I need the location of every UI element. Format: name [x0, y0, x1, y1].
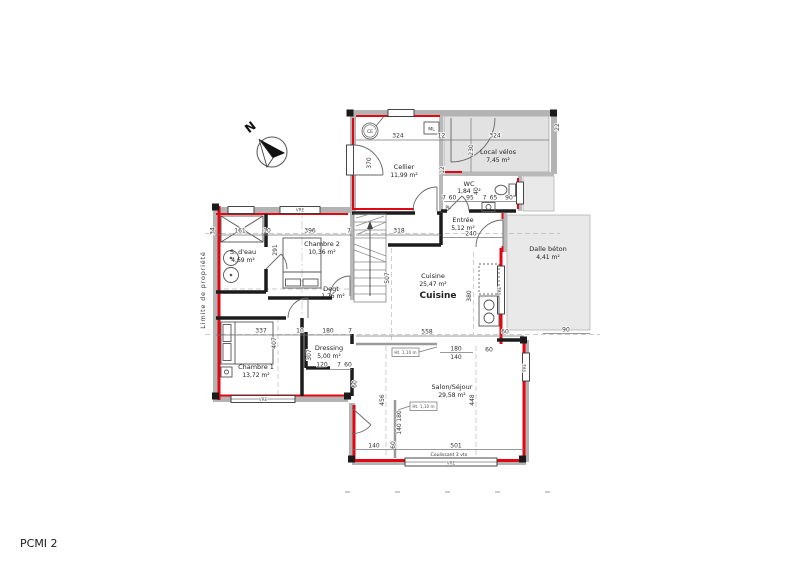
- dim-wc-7b: 7: [483, 195, 487, 202]
- dim-bottom-60: 60: [390, 441, 397, 449]
- dim-wing-10: 10: [263, 228, 271, 235]
- dim-wc-40: 40: [473, 187, 480, 195]
- height-note-top: Ht. 1,10 m: [394, 350, 416, 355]
- dim-hall-60: 60: [352, 380, 359, 388]
- height-notes: Ht. 1,10 m Ht. 1,10 m: [392, 347, 437, 411]
- wall-notch: [523, 176, 554, 211]
- cellier-top-window: [388, 110, 414, 117]
- sdeau-top-window: [228, 207, 254, 214]
- wc-east-window: [517, 182, 524, 204]
- dim-salon-60b: 60: [485, 347, 493, 354]
- dim-dressing-307: 307: [306, 349, 313, 361]
- degt-name: Degt: [323, 285, 339, 293]
- dim-velos-wall: 12: [439, 166, 446, 174]
- chambre2-area: 10,36 m²: [308, 249, 336, 256]
- dalle-beton-area: 4,41 m²: [536, 254, 560, 261]
- dim-velos-depth: 230: [468, 144, 475, 156]
- dim-dalle-90: 90: [562, 327, 570, 334]
- salon-name: Salon/Séjour: [432, 383, 473, 391]
- dim-chambre1-407: 407: [271, 337, 278, 349]
- floor-plan-drawing: N CE Ht. 1,10 m Ht. 1,10 m Cellier 11,99…: [0, 0, 800, 566]
- local-velos-name: Local vélos: [480, 148, 517, 156]
- dim-c1-10: 10: [296, 328, 304, 335]
- property-limit-label: Limite de propriété: [199, 251, 207, 328]
- ce-marker: CE: [362, 115, 385, 139]
- cuisine-bold-label: Cuisine: [419, 291, 456, 301]
- ml-label: ML: [428, 127, 435, 133]
- dim-lowwall-140: 140: [396, 423, 403, 435]
- dim-chambre2-291: 291: [272, 244, 279, 256]
- kitchen-appliance: [479, 264, 499, 294]
- dim-bottom-501: 501: [450, 443, 462, 450]
- dim-dressing-7: 7: [337, 362, 341, 369]
- ce-label: CE: [367, 129, 373, 135]
- cellier-south-door: [413, 187, 437, 211]
- height-note-low-wall: Ht. 1,10 m: [412, 404, 434, 409]
- dim-entree-240: 240: [465, 231, 477, 238]
- dim-salon-456: 456: [379, 394, 386, 406]
- local-velos-area: 7,45 m²: [486, 157, 510, 164]
- dalle-beton-name: Dalle béton: [529, 245, 566, 253]
- vre-cuisine-window: VRE: [497, 286, 502, 295]
- pl-label: PL: [445, 205, 451, 211]
- chambre1-name: Chambre 1: [238, 363, 274, 371]
- vre-salon-window: VRE: [447, 461, 456, 466]
- dim-wc-60: 60: [449, 195, 457, 202]
- sdeau-name: S. d'eau: [230, 248, 256, 256]
- wc-name: WC: [464, 180, 475, 188]
- dim-bottom-140: 140: [368, 443, 380, 450]
- dalle-beton-slab: [507, 215, 590, 330]
- sheet-label: PCMI 2: [20, 537, 58, 550]
- annotation-texts: ML PL VRE VRE VRE VRE VRE Coulissant 3 v…: [199, 127, 527, 466]
- dim-cellier-depth: 370: [366, 157, 373, 169]
- dim-wing-7: 7: [347, 228, 351, 235]
- dim-wall-12: 12: [438, 133, 446, 140]
- dim-wc-90: 90: [505, 195, 513, 202]
- degt-area: 1,76 m²: [321, 293, 345, 300]
- dim-dressing-180: 180: [322, 328, 334, 335]
- dim-hall-507: 507: [384, 272, 391, 284]
- dim-salon-558: 558: [421, 329, 433, 336]
- vre-chambre1-window: VRE: [259, 397, 268, 402]
- dim-c1-7: 7: [348, 328, 352, 335]
- dim-salon-60a: 60: [501, 329, 509, 336]
- kitchen-sink: [479, 296, 499, 326]
- cuisine-name: Cuisine: [421, 272, 445, 280]
- cellier-name: Cellier: [394, 163, 415, 171]
- dim-corner-22: 22: [554, 123, 561, 131]
- dressing-area: 5,00 m²: [317, 353, 341, 360]
- cellier-west-window: [347, 145, 354, 175]
- coulissant-label: Coulissant 3 vtx: [431, 452, 468, 458]
- dressing-name: Dressing: [315, 344, 343, 352]
- chambre2-name: Chambre 2: [304, 240, 340, 248]
- dim-stair-318: 318: [393, 228, 405, 235]
- dim-cuisine-380: 380: [466, 290, 473, 302]
- entree-name: Entrée: [452, 216, 473, 224]
- vre-top-window: VRE: [296, 208, 305, 213]
- dim-chambre2-396: 396: [304, 228, 316, 235]
- dim-sdeau-161: 161: [234, 228, 246, 235]
- cuisine-area: 25,47 m²: [419, 281, 447, 288]
- dim-salon-180: 180: [450, 346, 462, 353]
- salon-area: 29,58 m²: [438, 392, 466, 399]
- floor-plan-canvas: N CE Ht. 1,10 m Ht. 1,10 m Cellier 11,99…: [0, 0, 800, 566]
- north-compass: N: [242, 119, 287, 167]
- sdeau-area: 4,69 m²: [231, 257, 255, 264]
- dim-dressing-60: 60: [344, 362, 352, 369]
- dim-cellier-width: 324: [392, 133, 404, 140]
- chambre1-door: [288, 298, 308, 318]
- dim-salon-140: 140: [450, 354, 462, 361]
- north-label: N: [242, 119, 259, 136]
- dim-salon-448: 448: [469, 394, 476, 406]
- dim-velos-width: 324: [489, 133, 501, 140]
- dim-wc-7a: 7: [442, 195, 446, 202]
- dim-chambre1-337: 337: [255, 328, 267, 335]
- cellier-area: 11,99 m²: [390, 172, 418, 179]
- vre-salon-east-window: VRE: [522, 363, 527, 372]
- dim-wc-65: 65: [490, 195, 498, 202]
- staircase: [354, 214, 386, 302]
- dim-wing-34: 34: [210, 227, 217, 235]
- dim-dressing-120: 120: [316, 362, 328, 369]
- dim-lowwall-180: 180: [396, 410, 403, 422]
- chambre1-area: 13,72 m²: [242, 372, 270, 379]
